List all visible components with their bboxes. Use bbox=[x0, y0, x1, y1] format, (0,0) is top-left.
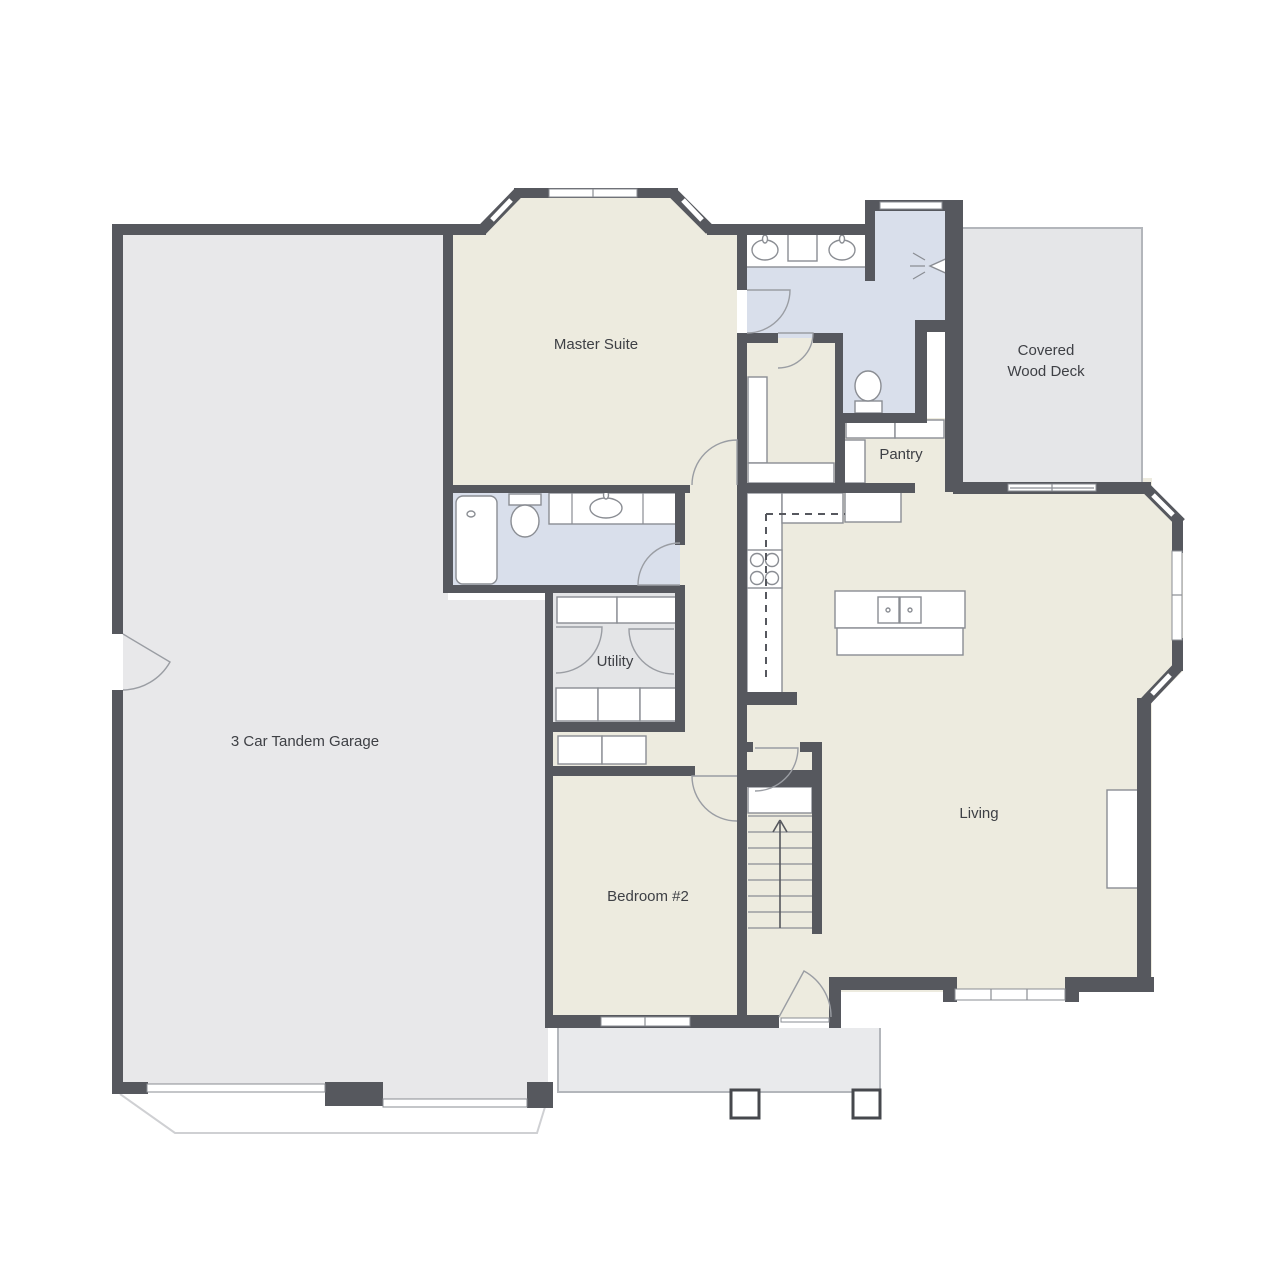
garage-label: 3 Car Tandem Garage bbox=[231, 733, 379, 750]
deck-label-line2: Wood Deck bbox=[1007, 363, 1085, 380]
wall bbox=[865, 211, 875, 281]
wall bbox=[1065, 977, 1079, 1002]
floor-plan-canvas: 3 Car Tandem Garage Master Suite Covered… bbox=[0, 0, 1275, 1275]
wall bbox=[813, 333, 843, 343]
wall bbox=[112, 1082, 148, 1094]
wall bbox=[835, 333, 843, 423]
wall bbox=[747, 770, 813, 787]
pantry-label: Pantry bbox=[879, 446, 923, 463]
porch-posts bbox=[731, 1090, 880, 1118]
living-label: Living bbox=[959, 805, 998, 822]
stove-burner bbox=[766, 554, 779, 567]
island-sink-drain bbox=[886, 608, 890, 612]
wall bbox=[915, 320, 927, 423]
wall bbox=[1172, 517, 1183, 553]
vanity-sink bbox=[590, 498, 622, 518]
wall bbox=[737, 333, 747, 750]
bedroom2-label: Bedroom #2 bbox=[607, 888, 689, 905]
wall bbox=[829, 977, 956, 990]
floor-plan: 3 Car Tandem Garage Master Suite Covered… bbox=[0, 0, 1275, 1275]
garage-door bbox=[147, 1084, 325, 1092]
wall bbox=[747, 333, 778, 343]
hallbath-faucet bbox=[840, 235, 845, 243]
hallbath-toilet-tank bbox=[855, 401, 882, 413]
wall bbox=[737, 224, 869, 235]
utility-closet-door bbox=[617, 597, 677, 623]
wall bbox=[737, 692, 797, 705]
wall bbox=[527, 1082, 553, 1108]
stove-burner bbox=[751, 554, 764, 567]
hallbath-faucet bbox=[763, 235, 768, 243]
wall bbox=[835, 413, 845, 487]
wall bbox=[675, 585, 685, 732]
kitchen-counter bbox=[747, 493, 782, 697]
wall bbox=[737, 483, 915, 493]
island-sink-drain bbox=[908, 608, 912, 612]
stove-burner bbox=[766, 572, 779, 585]
dryer bbox=[598, 688, 640, 721]
wall bbox=[443, 585, 685, 593]
wall bbox=[737, 750, 747, 1020]
hall-closet-door bbox=[602, 736, 646, 764]
closet-shelf bbox=[748, 377, 767, 463]
wall bbox=[945, 200, 963, 492]
wall bbox=[675, 485, 685, 545]
garage-door bbox=[383, 1099, 527, 1107]
wall bbox=[545, 722, 685, 732]
wall bbox=[443, 224, 453, 593]
pantry-shelf bbox=[844, 440, 865, 483]
wall bbox=[443, 485, 690, 493]
hallbath-vanity-cabinet bbox=[788, 233, 817, 261]
deck-label-line1: Covered bbox=[1018, 342, 1075, 359]
kitchen-island-bar bbox=[837, 628, 963, 655]
porch-floor bbox=[558, 1028, 880, 1092]
wall bbox=[112, 224, 123, 634]
wall bbox=[545, 585, 553, 1023]
washer bbox=[556, 688, 598, 721]
stair-hall-floor bbox=[737, 930, 829, 1018]
wall bbox=[1137, 698, 1151, 992]
door-opening bbox=[737, 290, 747, 333]
master-suite-label: Master Suite bbox=[554, 336, 638, 353]
wall bbox=[1078, 977, 1154, 992]
wall bbox=[325, 1082, 383, 1106]
toilet-tank bbox=[509, 494, 541, 505]
utility-closet-door bbox=[557, 597, 617, 623]
toilet-bowl bbox=[511, 505, 539, 537]
window bbox=[955, 989, 1065, 1000]
wall bbox=[112, 690, 123, 1088]
refrigerator bbox=[845, 490, 901, 522]
door-opening bbox=[112, 634, 123, 690]
hall-closet-door bbox=[558, 736, 602, 764]
wall bbox=[835, 413, 927, 423]
porch-post bbox=[731, 1090, 759, 1118]
bathtub-drain bbox=[467, 511, 475, 517]
bathtub bbox=[456, 496, 497, 584]
kitchen-counter bbox=[782, 493, 843, 523]
fireplace bbox=[1107, 790, 1138, 888]
window bbox=[880, 202, 942, 209]
stove-burner bbox=[751, 572, 764, 585]
wall bbox=[112, 224, 453, 235]
utility-label: Utility bbox=[597, 653, 634, 670]
hallbath-toilet-bowl bbox=[855, 371, 881, 401]
wall bbox=[545, 766, 695, 776]
wall bbox=[812, 742, 822, 934]
front-door-sill bbox=[781, 1018, 829, 1022]
porch-post bbox=[853, 1090, 880, 1118]
closet-shelf bbox=[748, 463, 834, 483]
room-floors bbox=[115, 192, 1183, 1104]
wall bbox=[829, 977, 841, 1028]
wall bbox=[747, 742, 753, 752]
